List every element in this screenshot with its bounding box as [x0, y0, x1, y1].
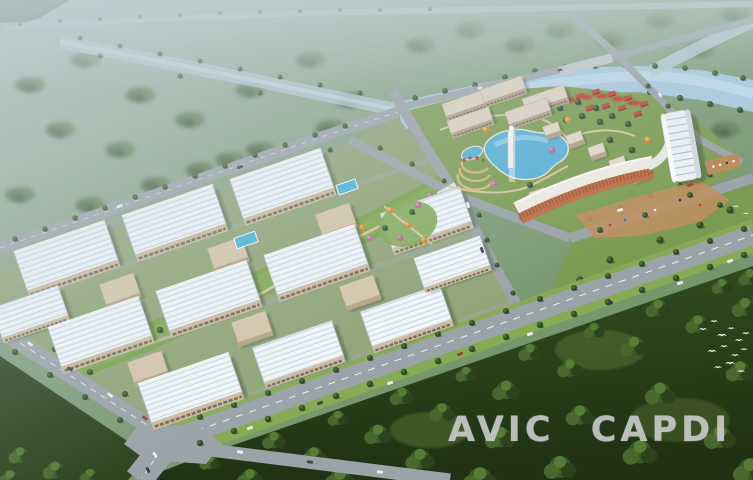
aerial-rendering [0, 0, 753, 480]
horizon-haze [0, 0, 753, 90]
watermark-text: AVIC CAPDI [448, 410, 753, 450]
rendering-canvas: AVIC CAPDI [0, 0, 753, 480]
